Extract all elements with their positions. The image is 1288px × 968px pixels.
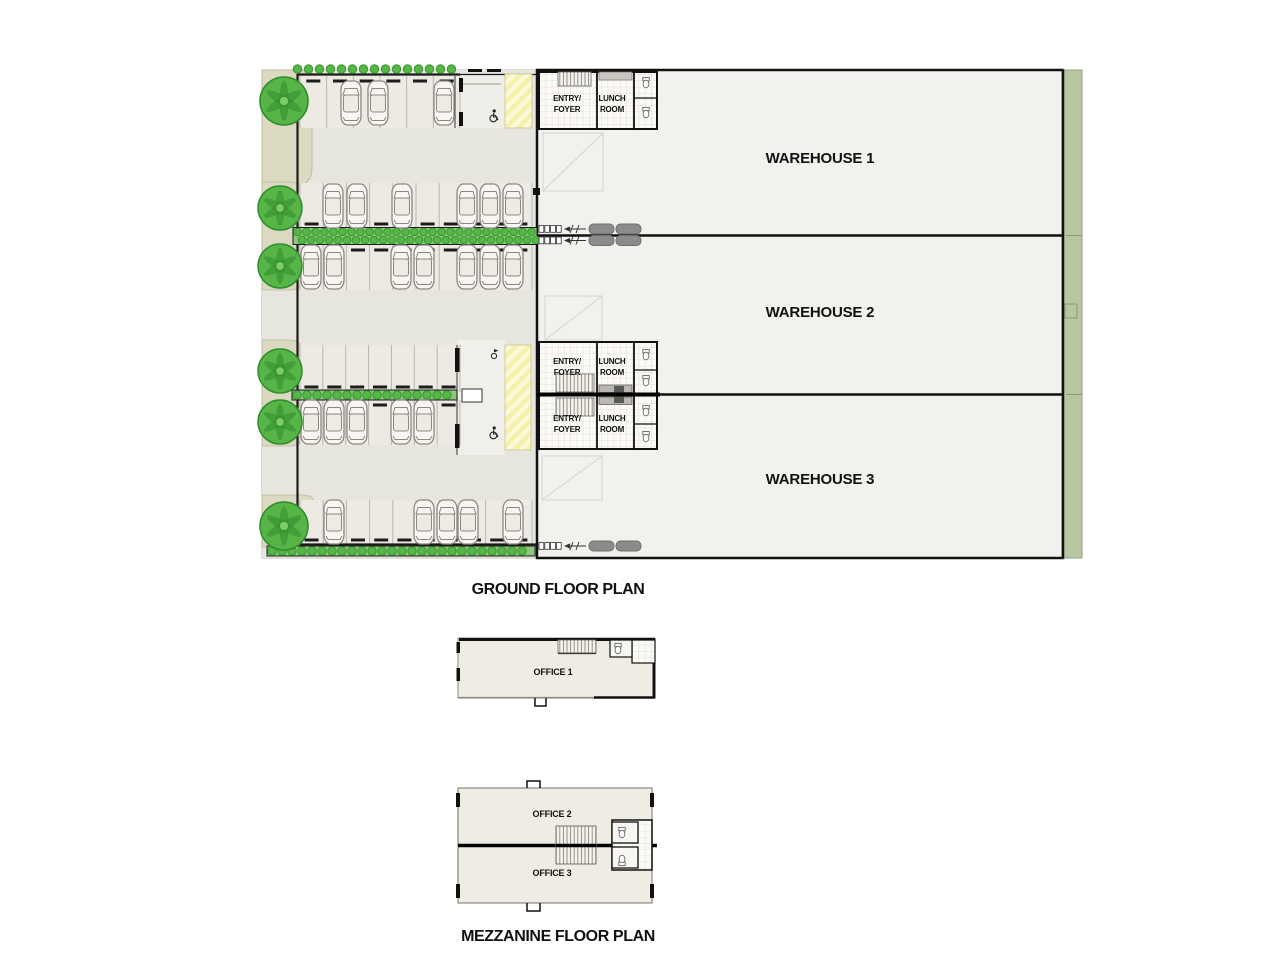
- tree-icon: [260, 502, 308, 550]
- bush-icon: [458, 547, 466, 555]
- bush-icon: [393, 228, 401, 236]
- bush-icon: [398, 547, 406, 555]
- bush-icon: [528, 228, 536, 236]
- bush-icon: [510, 228, 518, 236]
- yellow-walkway-strip: [505, 74, 532, 128]
- car-icon: [324, 245, 344, 289]
- warehouse1-amenities: ENTRY/ FOYER LUNCH ROOM: [539, 72, 657, 129]
- car-icon: [503, 245, 523, 289]
- car-icon: [368, 81, 388, 125]
- floor-plan-page: ENTRY/ FOYER LUNCH ROOM ENTRY/ FOYER LUN…: [0, 0, 1288, 968]
- truck-trailer-icon: [616, 236, 641, 246]
- car-icon: [341, 81, 361, 125]
- car-icon: [480, 184, 500, 228]
- hedge-row: [293, 65, 455, 73]
- car-icon: [457, 245, 477, 289]
- bush-icon: [411, 228, 419, 236]
- bush-icon: [298, 547, 306, 555]
- bush-icon: [447, 65, 455, 73]
- bush-icon: [403, 391, 411, 399]
- door-mark: [487, 69, 501, 72]
- bush-icon: [318, 547, 326, 555]
- bush-icon: [468, 547, 476, 555]
- room-label: LUNCH: [599, 357, 626, 366]
- bush-icon: [303, 228, 311, 236]
- bush-icon: [514, 236, 522, 244]
- bush-icon: [448, 547, 456, 555]
- bush-icon: [508, 547, 516, 555]
- bush-icon: [337, 65, 345, 73]
- bush-icon: [384, 228, 392, 236]
- door-marker: [533, 188, 540, 195]
- stairs: [558, 72, 591, 86]
- bush-icon: [460, 236, 468, 244]
- bush-icon: [478, 547, 486, 555]
- bush-icon: [333, 391, 341, 399]
- bush-icon: [313, 391, 321, 399]
- bush-icon: [433, 391, 441, 399]
- bush-icon: [325, 236, 333, 244]
- bush-icon: [456, 228, 464, 236]
- bush-icon: [428, 547, 436, 555]
- car-icon: [347, 184, 367, 228]
- bush-icon: [363, 391, 371, 399]
- bush-icon: [523, 236, 531, 244]
- bush-icon: [339, 228, 347, 236]
- car-icon: [347, 400, 367, 444]
- bush-icon: [392, 65, 400, 73]
- room-label: FOYER: [554, 105, 581, 114]
- floor-plan-drawing: ENTRY/ FOYER LUNCH ROOM ENTRY/ FOYER LUN…: [0, 0, 1288, 968]
- kitchen-counter: [599, 72, 632, 80]
- bush-icon: [298, 236, 306, 244]
- mezzanine-title: MEZZANINE FLOOR PLAN: [461, 928, 655, 945]
- amenity-tiles: [632, 640, 655, 663]
- room-label: FOYER: [554, 368, 581, 377]
- office-1-label: OFFICE 1: [534, 667, 573, 677]
- car-icon: [414, 400, 434, 444]
- bush-icon: [358, 547, 366, 555]
- office-3-label: OFFICE 3: [533, 868, 572, 878]
- warehouse2-3-amenities: ENTRY/ FOYER LUNCH ROOM ENTRY/ FOYER LUN…: [537, 342, 660, 449]
- bush-icon: [501, 228, 509, 236]
- bush-icon: [373, 391, 381, 399]
- bush-icon: [518, 547, 526, 555]
- truck-trailer-icon: [589, 236, 614, 246]
- stair-notch: [527, 781, 540, 788]
- car-icon: [324, 400, 344, 444]
- tree-icon: [260, 77, 308, 125]
- bush-icon: [307, 236, 315, 244]
- car-icon: [437, 500, 457, 544]
- bush-icon: [370, 236, 378, 244]
- warehouse-3-label: WAREHOUSE 3: [766, 471, 875, 488]
- bush-icon: [357, 228, 365, 236]
- bush-icon: [469, 236, 477, 244]
- bush-icon: [474, 228, 482, 236]
- warehouse-2-label: WAREHOUSE 2: [766, 304, 875, 321]
- bush-icon: [366, 228, 374, 236]
- bush-icon: [492, 228, 500, 236]
- bush-icon: [443, 391, 451, 399]
- bush-icon: [304, 65, 312, 73]
- bush-icon: [308, 547, 316, 555]
- bush-icon: [424, 236, 432, 244]
- bush-icon: [429, 228, 437, 236]
- truck-trailer-icon: [616, 224, 641, 234]
- bush-icon: [361, 236, 369, 244]
- room-label: ENTRY/: [553, 414, 582, 423]
- bush-icon: [348, 547, 356, 555]
- ground-floor-title: GROUND FLOOR PLAN: [472, 581, 645, 598]
- room-label: ENTRY/: [553, 357, 582, 366]
- bush-icon: [328, 547, 336, 555]
- car-icon: [392, 184, 412, 228]
- bush-icon: [519, 228, 527, 236]
- bush-icon: [368, 547, 376, 555]
- bush-icon: [415, 236, 423, 244]
- bush-icon: [408, 547, 416, 555]
- parking-row: [300, 345, 460, 392]
- car-icon: [301, 400, 321, 444]
- mezzanine-office1-plan: OFFICE 1: [457, 638, 656, 706]
- room-label: ROOM: [600, 368, 625, 377]
- room-label: LUNCH: [599, 414, 626, 423]
- bush-icon: [383, 391, 391, 399]
- car-icon: [480, 245, 500, 289]
- ground-floor-plan: ENTRY/ FOYER LUNCH ROOM ENTRY/ FOYER LUN…: [258, 65, 1082, 598]
- room-label: LUNCH: [599, 94, 626, 103]
- hedge-row: [267, 546, 535, 556]
- car-icon: [414, 500, 434, 544]
- tree-icon: [258, 400, 302, 444]
- bush-icon: [353, 391, 361, 399]
- bush-icon: [370, 65, 378, 73]
- hedge-row: [293, 228, 540, 245]
- door-mark: [468, 69, 482, 72]
- bush-icon: [414, 65, 422, 73]
- bush-icon: [483, 228, 491, 236]
- bush-icon: [393, 391, 401, 399]
- bush-icon: [323, 391, 331, 399]
- bush-icon: [505, 236, 513, 244]
- bush-icon: [496, 236, 504, 244]
- bush-icon: [465, 228, 473, 236]
- bush-icon: [487, 236, 495, 244]
- bush-icon: [425, 65, 433, 73]
- gate-mark: [462, 389, 482, 402]
- bush-icon: [498, 547, 506, 555]
- car-icon: [391, 245, 411, 289]
- bush-icon: [413, 391, 421, 399]
- car-icon: [457, 184, 477, 228]
- bush-icon: [379, 236, 387, 244]
- room-label: ROOM: [600, 425, 625, 434]
- bush-icon: [403, 65, 411, 73]
- tree-icon: [258, 186, 302, 230]
- tree-icon: [258, 349, 302, 393]
- bush-icon: [334, 236, 342, 244]
- car-icon: [458, 500, 478, 544]
- bush-icon: [423, 391, 431, 399]
- bush-icon: [293, 391, 301, 399]
- bush-icon: [348, 228, 356, 236]
- bush-icon: [442, 236, 450, 244]
- car-icon: [391, 400, 411, 444]
- car-icon: [323, 184, 343, 228]
- side-verge: [1063, 70, 1082, 558]
- car-icon: [503, 500, 523, 544]
- bush-icon: [436, 65, 444, 73]
- bush-icon: [303, 391, 311, 399]
- bush-icon: [352, 236, 360, 244]
- yellow-walkway-strip: [505, 345, 531, 450]
- bush-icon: [316, 236, 324, 244]
- room-label: ROOM: [600, 105, 625, 114]
- bush-icon: [420, 228, 428, 236]
- car-icon: [301, 245, 321, 289]
- stair-landing-notch: [535, 698, 546, 706]
- truck-dock: [539, 541, 641, 551]
- bush-icon: [321, 228, 329, 236]
- bush-icon: [359, 65, 367, 73]
- mezzanine-office23-plan: OFFICE 2 OFFICE 3: [456, 781, 657, 911]
- room-label: ENTRY/: [553, 94, 582, 103]
- truck-trailer-icon: [589, 224, 614, 234]
- bush-icon: [378, 547, 386, 555]
- bush-icon: [326, 65, 334, 73]
- car-icon: [414, 245, 434, 289]
- bush-icon: [478, 236, 486, 244]
- bush-icon: [397, 236, 405, 244]
- bush-icon: [343, 391, 351, 399]
- bush-icon: [338, 547, 346, 555]
- bush-icon: [315, 65, 323, 73]
- stair-notch: [527, 903, 540, 911]
- car-icon: [434, 81, 454, 125]
- truck-trailer-icon: [589, 541, 614, 551]
- bush-icon: [488, 547, 496, 555]
- office-2-label: OFFICE 2: [533, 809, 572, 819]
- car-icon: [503, 184, 523, 228]
- bush-icon: [294, 228, 302, 236]
- car-icon: [324, 500, 344, 544]
- bush-icon: [388, 547, 396, 555]
- bush-icon: [348, 65, 356, 73]
- tree-icon: [258, 244, 302, 288]
- truck-trailer-icon: [616, 541, 641, 551]
- bush-icon: [388, 236, 396, 244]
- bush-icon: [375, 228, 383, 236]
- hedge-row: [292, 390, 457, 400]
- bush-icon: [447, 228, 455, 236]
- bush-icon: [438, 547, 446, 555]
- bush-icon: [433, 236, 441, 244]
- stairs: [558, 640, 596, 653]
- bush-icon: [406, 236, 414, 244]
- bush-icon: [381, 65, 389, 73]
- room-label: FOYER: [554, 425, 581, 434]
- bush-icon: [293, 65, 301, 73]
- bush-icon: [330, 228, 338, 236]
- bush-icon: [402, 228, 410, 236]
- bush-icon: [438, 228, 446, 236]
- bush-icon: [312, 228, 320, 236]
- bush-icon: [451, 236, 459, 244]
- bush-icon: [343, 236, 351, 244]
- warehouse-1-label: WAREHOUSE 1: [766, 150, 875, 167]
- bush-icon: [418, 547, 426, 555]
